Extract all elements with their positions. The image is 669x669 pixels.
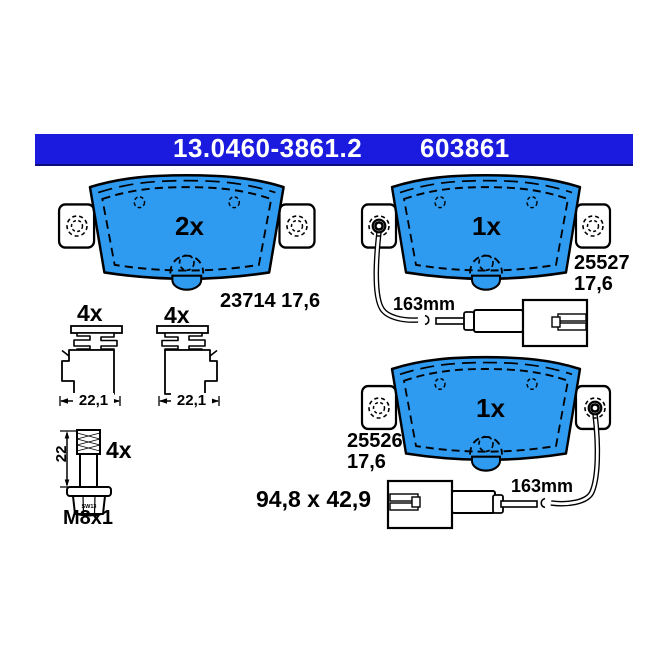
bolt-quantity: 4x	[106, 438, 132, 462]
pad-lower-thickness: 17,6	[347, 452, 403, 473]
wire-end	[425, 316, 429, 325]
brake-pad-technical-drawing: SW13	[0, 0, 669, 669]
pad-lower-cable-length: 163mm	[511, 477, 573, 496]
header-bar: 13.0460-3861.2 603861	[35, 134, 633, 166]
pad-dimensions: 94,8 x 42,9	[256, 487, 371, 511]
part-number: 13.0460-3861.2	[173, 134, 362, 163]
clip-left-quantity: 4x	[77, 301, 103, 325]
bolt-thread: M8x1	[63, 508, 113, 529]
pad-lower-ref-number: 25526	[347, 431, 403, 452]
bolt-length: 22	[54, 439, 70, 469]
pad-upper-cable-length: 163mm	[393, 295, 455, 314]
pad-upper-sensor-drawing	[362, 175, 610, 346]
pad-plain-quantity: 2x	[175, 213, 204, 240]
clip-left-width: 22,1	[73, 393, 114, 409]
clip-right-quantity: 4x	[164, 303, 190, 327]
sensor-connector-upper	[436, 300, 587, 346]
pad-upper-ref-number: 25527	[574, 253, 630, 274]
pad-lower-quantity: 1x	[476, 395, 505, 422]
wire-end	[541, 499, 545, 508]
pad-lower-reference: 25526 17,6	[347, 431, 403, 473]
product-diagram: SW13 13.0460-3861.2 603861 2x 23714 17,6…	[0, 0, 669, 669]
article-number: 603861	[420, 134, 510, 163]
pad-upper-thickness: 17,6	[574, 274, 630, 295]
clip-right-width: 22,1	[171, 393, 212, 409]
pad-plain-reference: 23714 17,6	[220, 291, 320, 312]
pad-upper-reference: 25527 17,6	[574, 253, 630, 295]
pad-upper-quantity: 1x	[472, 213, 501, 240]
